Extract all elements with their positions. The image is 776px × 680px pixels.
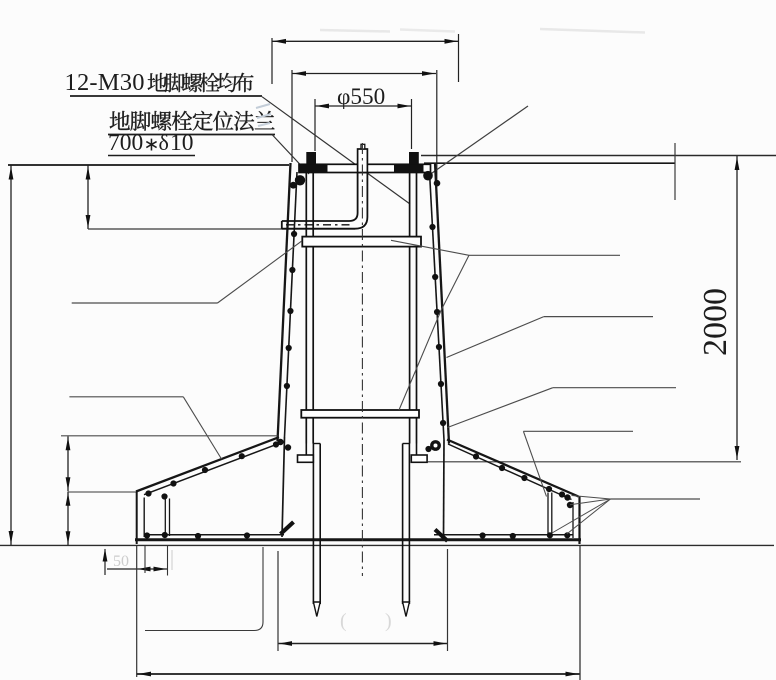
svg-text:φ550: φ550 (337, 84, 385, 110)
svg-text:): ) (385, 610, 392, 632)
svg-text:∗: ∗ (144, 135, 160, 156)
svg-text:2000: 2000 (697, 288, 734, 356)
svg-text:700: 700 (108, 130, 143, 156)
svg-text:10: 10 (170, 130, 194, 156)
svg-text:50: 50 (113, 553, 129, 570)
svg-text:12-M30: 12-M30 (65, 69, 145, 96)
svg-text:(: ( (340, 610, 347, 632)
svg-text:δ: δ (159, 130, 169, 155)
